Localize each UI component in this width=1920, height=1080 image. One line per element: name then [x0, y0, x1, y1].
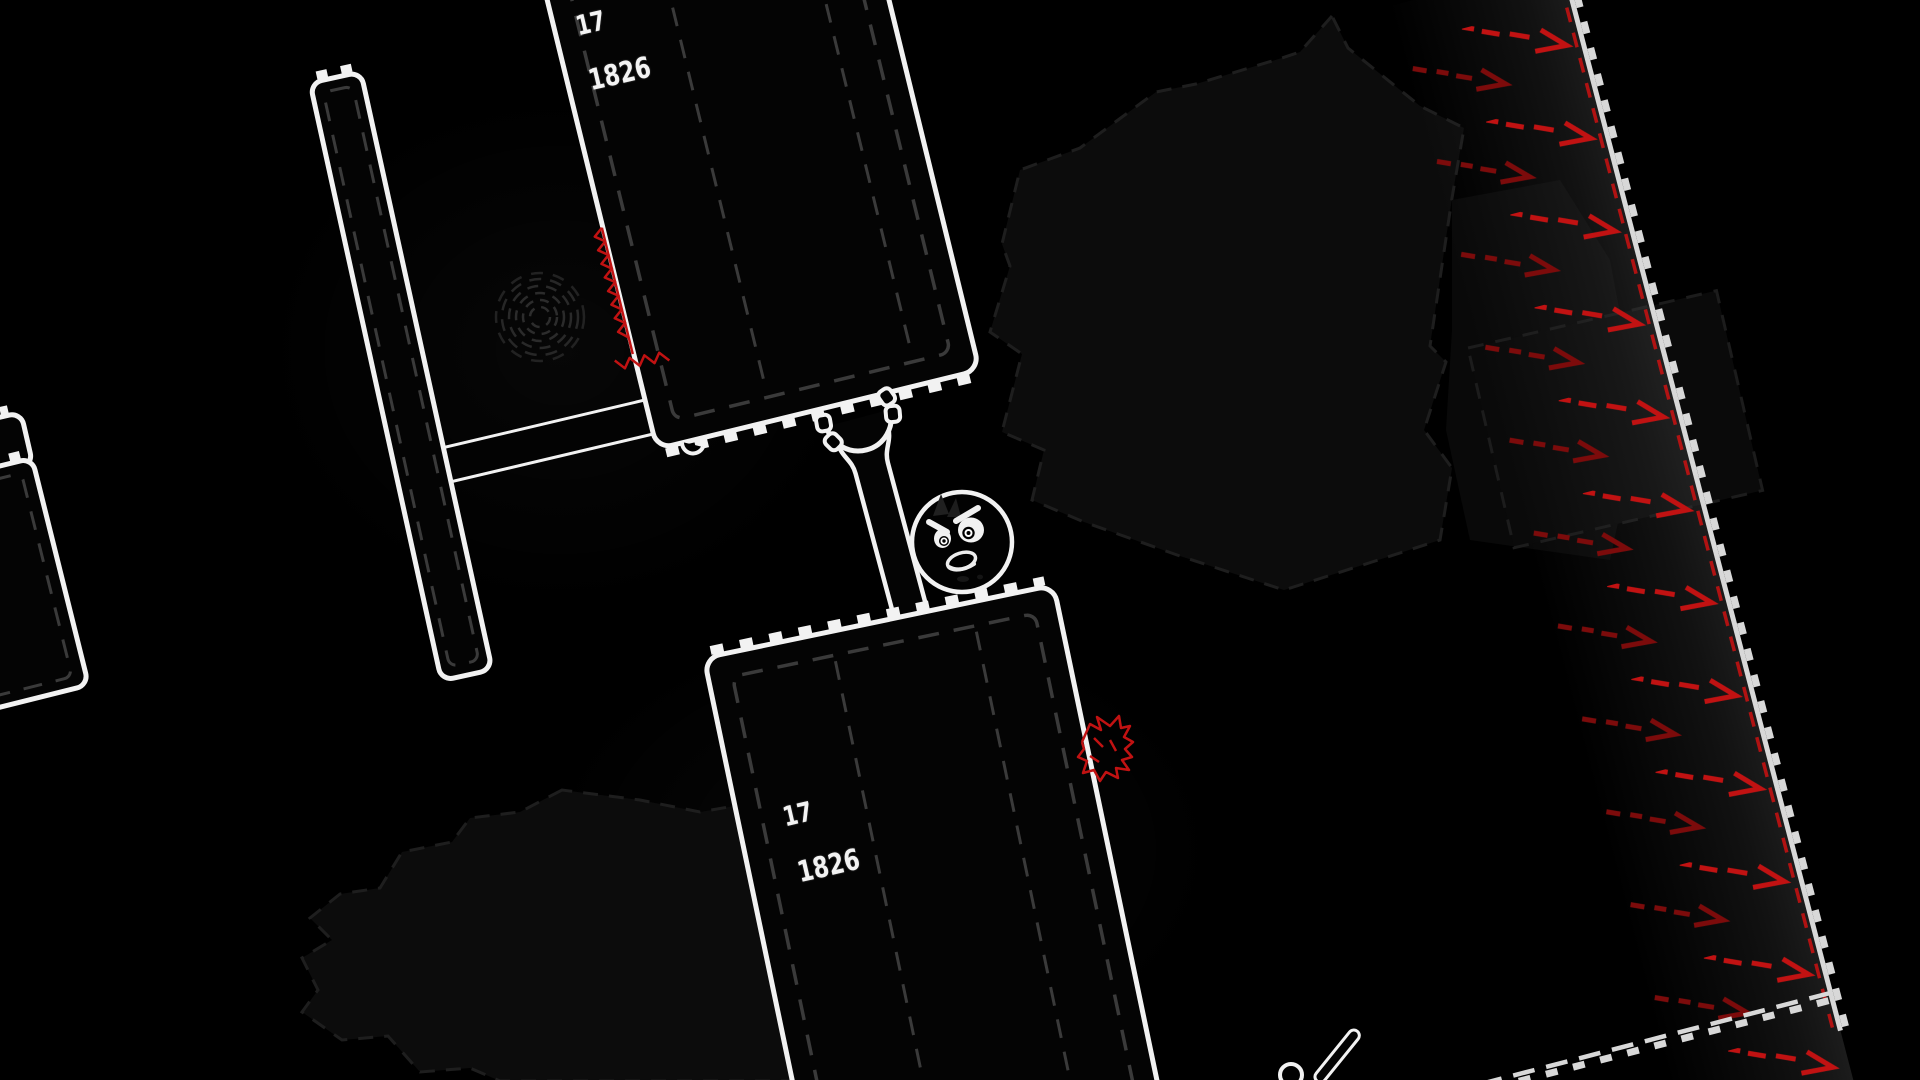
pillar-tall-left: [309, 66, 492, 681]
platform-top-number-small: 17: [573, 5, 609, 42]
game-canvas[interactable]: [0, 0, 1920, 1080]
terrain-silhouette: [990, 16, 1464, 590]
stick-debris: [1313, 1028, 1362, 1080]
debris: [1280, 1028, 1362, 1080]
angry-ball-character: [912, 492, 1012, 592]
game-screen: { "platform_top": { "number_small": "17"…: [0, 0, 1920, 1080]
circle-debris: [1280, 1064, 1302, 1080]
platform-edge-large: [0, 452, 89, 716]
spiral-decal: [496, 273, 584, 361]
platform-bottom: [703, 579, 1185, 1080]
platform-top: [490, 0, 981, 460]
platform-bottom-number-small: 17: [780, 796, 816, 833]
